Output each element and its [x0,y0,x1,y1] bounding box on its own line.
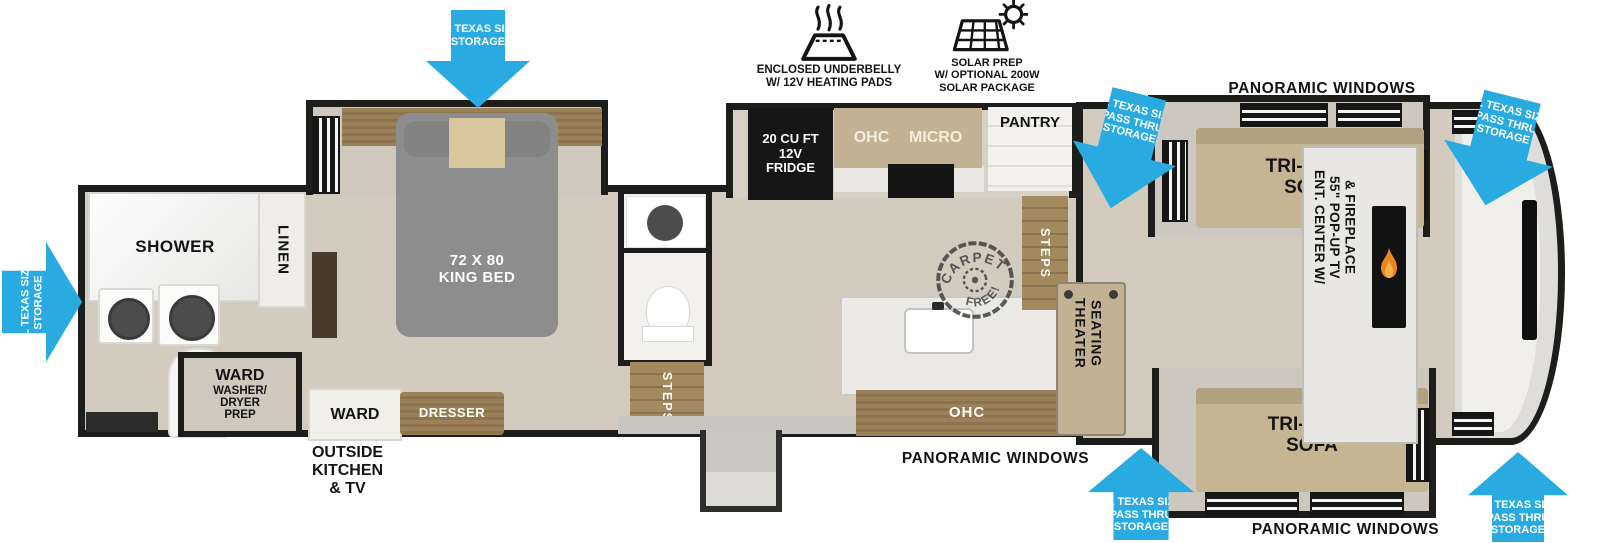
entertainment-center: ENT. CENTER W/ 55" POP-UP TV & FIREPLACE [1302,146,1418,444]
bedroom-ward-label: WARD [331,406,380,424]
theater-label: THEATER SEATING [1072,298,1103,369]
pantry: PANTRY [988,107,1072,191]
king-bed: 72 X 80 KING BED [396,113,558,337]
panoramic-windows-bottom-label: PANORAMIC WINDOWS [893,450,1098,467]
bedroom-console [312,252,337,338]
outside-kitchen-tv-label: OUTSIDE KITCHEN & TV [285,444,410,498]
storage-arrow-rear: XL TEXAS SIZE STORAGE [2,242,82,362]
range-cooktop [888,164,954,198]
dryer-door [169,295,215,341]
entry-step [700,430,782,512]
island-ohc-label: OHC [949,405,985,422]
kitchen-ohc-cabinet: OHC MICRO [834,108,982,168]
stamp-arc-top: CARPET [932,241,1011,291]
stamp-arc-bottom: FREE! [960,280,1007,313]
panoramic-windows-front-label: PANORAMIC WINDOWS [1243,521,1448,538]
heating-pads-icon [793,4,865,62]
ohc-label: OHC [854,129,890,147]
bedroom-ward: WARD [308,388,402,441]
fridge-label: 20 CU FT 12V FRIDGE [762,132,818,176]
living-window-top-1 [1240,103,1328,127]
front-cap-window-bottom [1452,412,1494,436]
theater-seating: THEATER SEATING [1056,282,1126,436]
ward-washer-dryer-prep: WARD WASHER/ DRYER PREP [178,352,302,437]
underbelly-label: ENCLOSED UNDERBELLY W/ 12V HEATING PADS [748,64,910,90]
storage-arrow-rear-label: XL TEXAS SIZE STORAGE [19,243,44,363]
dresser-label: DRESSER [419,406,485,421]
kitchen-lower-ohc: OHC [856,390,1078,436]
dresser: DRESSER [400,392,504,435]
linen-label: LINEN [274,225,291,275]
washer-door [108,298,150,340]
pantry-label: PANTRY [988,115,1072,132]
bed-blanket-fold [449,118,505,168]
svg-text:FREE!: FREE! [960,280,1007,313]
floorplan-canvas: ENCLOSED UNDERBELLY W/ 12V HEATING PADS … [0,0,1600,543]
king-bed-label: 72 X 80 KING BED [396,253,558,287]
living-window-bottom-2 [1310,492,1404,516]
ward-wd-sub: WASHER/ DRYER PREP [213,385,267,421]
mid-bath-sink [647,205,683,241]
mid-bath-wall [624,248,706,253]
living-window-top-left [1162,140,1188,222]
mid-steps-label: STEPS [660,372,674,423]
flame-icon [1377,246,1401,286]
refrigerator: 20 CU FT 12V FRIDGE [748,108,833,200]
mid-bath-vanity [626,196,706,248]
mid-bath [618,188,712,366]
sofa-top-back [1196,128,1424,144]
living-window-bottom-1 [1205,492,1299,516]
ent-center-label: ENT. CENTER W/ 55" POP-UP TV & FIREPLACE [1312,170,1357,284]
svg-text:CARPET: CARPET [932,241,1011,291]
ward-wd-title: WARD [216,367,265,385]
fireplace [1372,206,1406,328]
living-window-top-2 [1336,103,1402,127]
storage-arrow-bedroom: XL TEXAS SIZE STORAGE [426,10,530,108]
washer-unit [98,288,154,344]
bedroom-window [312,116,340,194]
linen-closet: LINEN [258,192,306,308]
toilet-tank [642,326,694,342]
rear-bath-counter [86,412,158,432]
front-steps-label: STEPS [1038,228,1052,279]
storage-arrow-bedroom-label: XL TEXAS SIZE STORAGE [426,23,530,48]
shower-label: SHOWER [135,237,215,256]
pass-thru-bottom-right-label: XL TEXAS SIZE PASS THRU STORAGE [1468,499,1568,537]
front-tv [1522,200,1537,340]
pass-thru-arrow-bottom-right: XL TEXAS SIZE PASS THRU STORAGE [1468,452,1568,542]
solar-panel-icon [948,0,1028,56]
micro-label: MICRO [909,129,962,147]
dryer-unit [158,284,220,346]
solar-label: SOLAR PREP W/ OPTIONAL 200W SOLAR PACKAG… [912,57,1062,94]
theater-cupholder-2 [1109,290,1118,299]
